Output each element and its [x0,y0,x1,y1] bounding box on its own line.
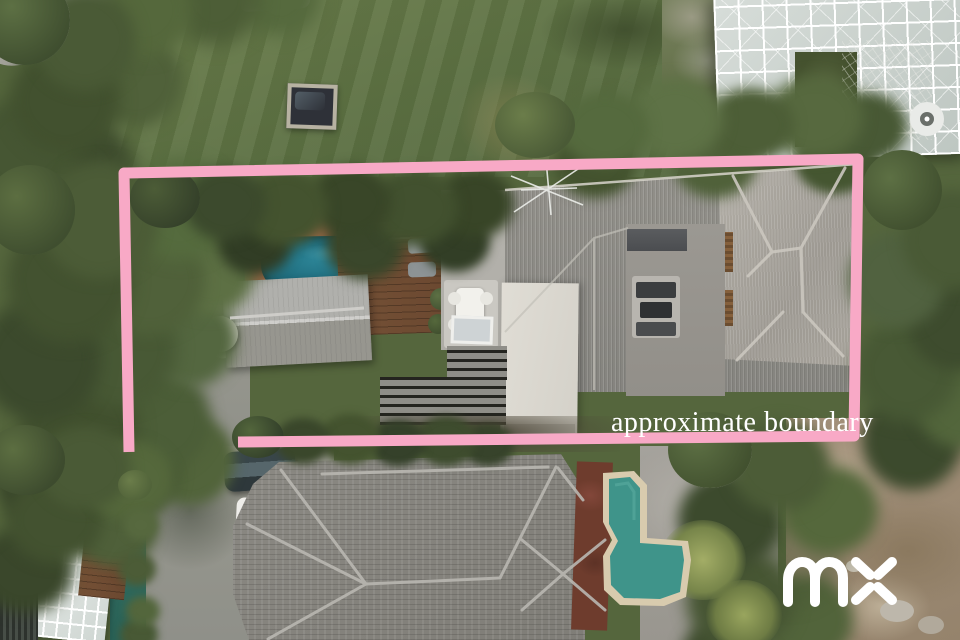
aerial-photo: approximate boundary [0,0,960,640]
mx-logo-strokes [788,562,892,602]
mx-logo-m [788,562,843,602]
mx-logo [0,0,960,640]
mx-logo-x [856,562,892,600]
